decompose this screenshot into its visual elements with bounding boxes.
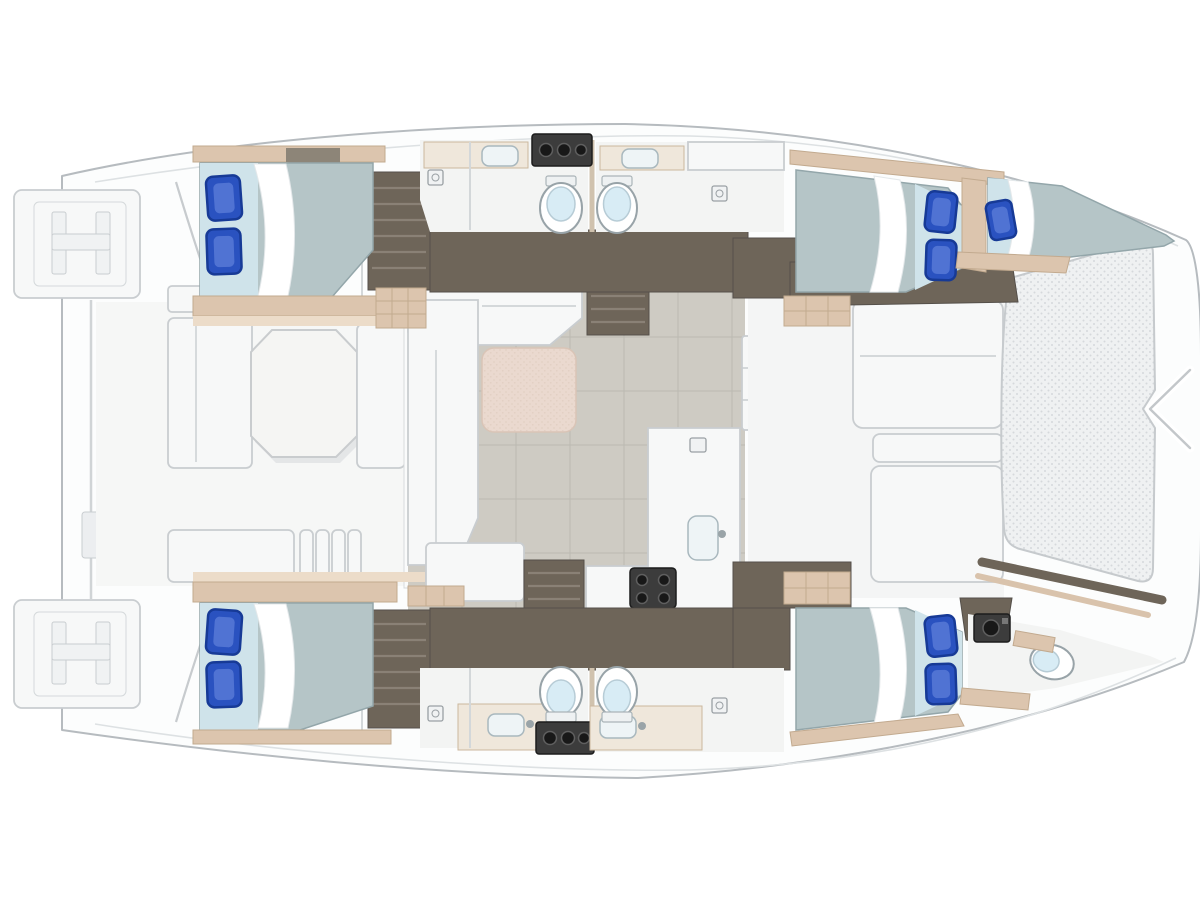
forward-cockpit-bench-middle [873,434,1003,462]
port-aft-head-sink [482,146,518,166]
starboard-forward-shower-drain-icon [712,698,727,713]
port-forward-toilet [597,176,637,233]
starboard-forward-toilet [597,667,637,722]
port-aft-toilet [540,176,582,233]
aft-starboard-foot-trim [193,730,391,744]
starboard-aft-shower-drain-icon [428,706,443,721]
starboard-wardrobe-aft [408,586,464,606]
aft-cockpit [96,286,412,588]
aft-cockpit-table [251,330,357,457]
trampoline-net [1001,241,1155,582]
forward-starboard-pillow-2 [925,663,956,704]
port-forward-head-slab [688,142,784,170]
salon-table-texture [482,348,576,432]
companionway-steps-starboard [524,560,584,612]
catamaran-deck-plan-page [0,0,1200,900]
aft-port-foot-trim [193,296,397,316]
aft-starboard-trim-2 [193,572,425,582]
starboard-aft-head-sink [488,714,524,736]
forward-cockpit [748,292,1004,598]
port-forward-shower-drain-icon [712,186,727,201]
aft-cockpit-right-seat [357,324,405,468]
forepeak-pillow [985,199,1017,241]
starboard-aft-toilet [540,667,582,722]
forward-port-pillow-1 [924,191,958,234]
starboard-wardrobe-forward [784,572,850,604]
aft-cockpit-left-bench [168,318,252,468]
forward-cockpit-bench-top [853,300,1003,428]
bow-head-sink-unit [974,614,1010,642]
port-wardrobe-forward [784,296,850,326]
port-wardrobe-aft [376,288,426,328]
aft-starboard-pillow-1 [206,609,243,655]
forward-starboard-pillow-1 [924,615,958,658]
aft-port-pillow-1 [206,175,243,221]
aft-starboard-pillow-2 [206,661,242,707]
galley-faucet [718,530,726,538]
starboard-forward-faucet [638,722,646,730]
port-aft-shower-drain-icon [428,170,443,185]
galley-stove [630,568,676,608]
starboard-grill-fixture [536,722,594,754]
aft-port-pillow-2 [206,228,242,274]
starboard-forward-head [590,667,784,752]
galley-small-hatch [690,438,706,452]
port-grill-fixture [532,134,592,166]
starboard-aft-faucet [526,720,534,728]
salon-sofa-side [408,300,478,565]
port-forward-head [596,142,784,233]
forward-port-pillow-2 [925,239,956,280]
forward-starboard-cabin [790,608,964,746]
port-forward-head-sink [622,149,658,168]
galley-sink [688,516,718,560]
deck-plan-drawing [0,0,1200,900]
aft-starboard-headboard-trim [193,582,397,602]
